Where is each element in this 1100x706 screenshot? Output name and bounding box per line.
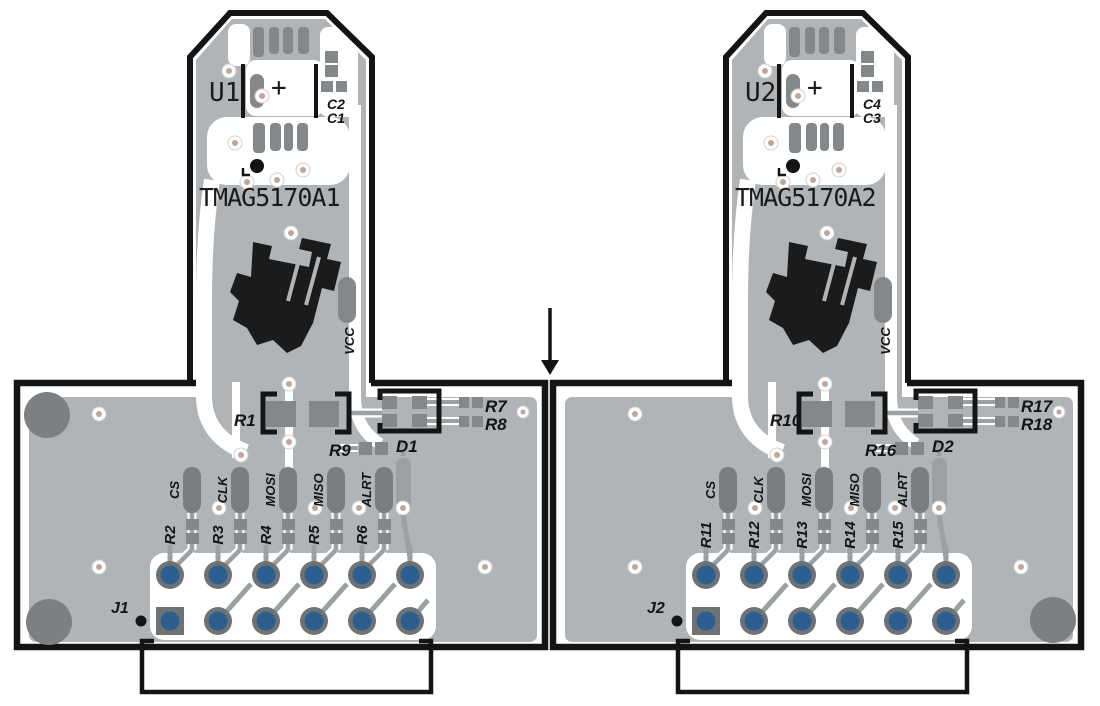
down-arrow bbox=[541, 308, 559, 375]
resistor-label-3: R13 bbox=[794, 521, 811, 549]
resistor-label-4: R14 bbox=[842, 521, 859, 549]
vcc-pad bbox=[874, 277, 892, 323]
pcb-board: U1 + C2 C1 TMAG5170A1 VCC R1 R9 D1 R7 R8… bbox=[14, 13, 548, 692]
signal-label-alrt: ALRT bbox=[895, 472, 910, 508]
resistor-label-2: R12 bbox=[746, 521, 763, 549]
resistor-label-5: R15 bbox=[890, 521, 907, 549]
vcc-pad bbox=[338, 277, 356, 323]
part-number: TMAG5170A2 bbox=[735, 183, 876, 212]
r-mid-label: R9 bbox=[329, 441, 351, 460]
connector-pin1-dot bbox=[136, 616, 147, 627]
r-a-label: R7 bbox=[485, 397, 508, 416]
u-label: U1 bbox=[209, 78, 240, 108]
signal-label-mosi: MOSI bbox=[799, 473, 814, 507]
signal-label-miso: MISO bbox=[311, 473, 326, 506]
pcb-layout-image: U1 + C2 C1 TMAG5170A1 VCC R1 R9 D1 R7 R8… bbox=[0, 0, 1100, 706]
cap-bottom-label: C1 bbox=[327, 110, 345, 126]
signal-label-cs: CS bbox=[703, 481, 718, 499]
diode-label: D2 bbox=[932, 437, 954, 456]
mount-circle-top-left bbox=[24, 392, 70, 438]
resistor-label-2: R3 bbox=[210, 525, 227, 545]
resistor-label-1: R2 bbox=[162, 525, 179, 545]
r-a-label: R17 bbox=[1021, 397, 1054, 416]
plus-mark: + bbox=[271, 73, 287, 103]
plus-mark: + bbox=[807, 73, 823, 103]
r-b-label: R18 bbox=[1021, 415, 1053, 434]
r-b-label: R8 bbox=[485, 415, 507, 434]
signal-label-miso: MISO bbox=[847, 473, 862, 506]
pin1-dot bbox=[250, 159, 264, 173]
r-mid-label: R16 bbox=[865, 441, 897, 460]
vcc-label: VCC bbox=[342, 327, 357, 355]
vcc-label: VCC bbox=[878, 327, 893, 355]
pcb-board: U2 + C4 C3 TMAG5170A2 VCC R10 R16 D2 R17… bbox=[550, 13, 1084, 692]
mount-circle-bottom-right bbox=[1030, 597, 1076, 643]
r-main-label: R10 bbox=[770, 411, 802, 430]
resistor-label-1: R11 bbox=[698, 522, 715, 548]
connector-pin1-dot bbox=[672, 616, 683, 627]
u-label: U2 bbox=[745, 78, 776, 108]
resistor-label-5: R6 bbox=[354, 525, 371, 545]
diode-label: D1 bbox=[396, 437, 418, 456]
resistor-label-3: R4 bbox=[258, 525, 275, 545]
signal-label-cs: CS bbox=[167, 481, 182, 499]
connector-label: J1 bbox=[111, 600, 129, 617]
signal-label-clk: CLK bbox=[751, 475, 766, 503]
cap-bottom-label: C3 bbox=[863, 110, 881, 126]
signal-label-alrt: ALRT bbox=[359, 472, 374, 508]
connector-label: J2 bbox=[647, 600, 665, 617]
signal-label-mosi: MOSI bbox=[263, 473, 278, 507]
signal-label-clk: CLK bbox=[215, 475, 230, 503]
mount-circle-bottom-left bbox=[26, 599, 72, 645]
part-number: TMAG5170A1 bbox=[199, 183, 340, 212]
resistor-label-4: R5 bbox=[306, 525, 323, 545]
pin1-dot bbox=[786, 159, 800, 173]
r-main-label: R1 bbox=[234, 411, 256, 430]
